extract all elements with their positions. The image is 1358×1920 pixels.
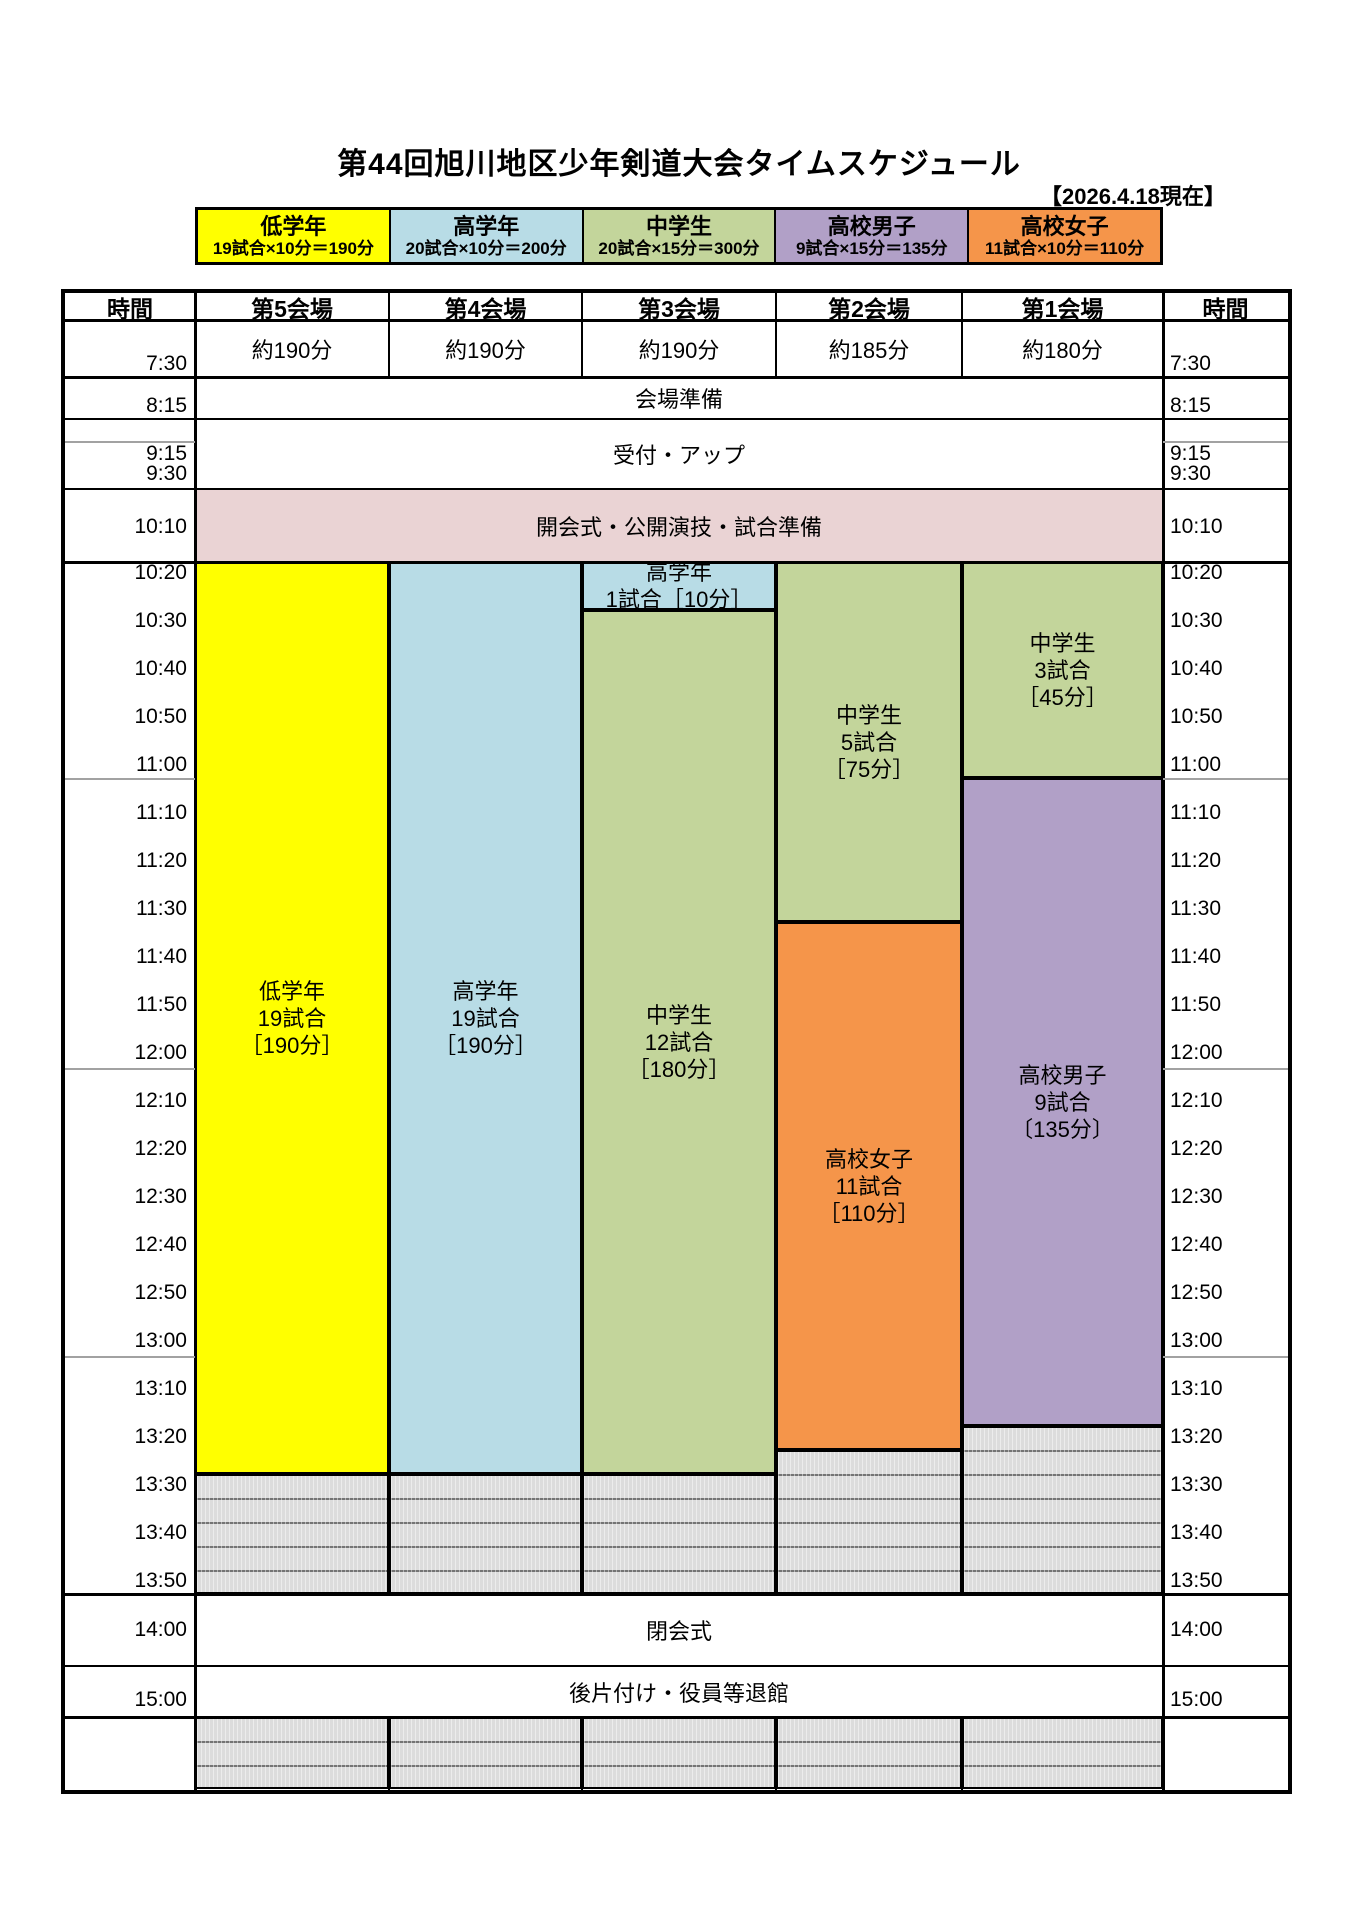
- legend-item: 高校女子11試合×10分＝110分: [967, 210, 1160, 262]
- time-column-divider: [1163, 778, 1288, 780]
- header-cell: 第1会場: [962, 293, 1163, 320]
- legend-item-formula: 11試合×10分＝110分: [985, 239, 1144, 258]
- legend-item: 高学年20試合×10分＝200分: [389, 210, 582, 262]
- schedule-block-v4: 高学年 19試合 ［190分］: [389, 562, 582, 1474]
- header-cell: 第3会場: [582, 293, 776, 320]
- row-line: [65, 488, 1288, 490]
- time-label-right: 10:40: [1170, 657, 1284, 681]
- time-label-left: 12:40: [65, 1233, 187, 1257]
- time-label-left: 11:50: [65, 993, 187, 1017]
- time-label-right: 10:30: [1170, 609, 1284, 633]
- time-label-right: 12:40: [1170, 1233, 1284, 1257]
- time-column-divider: [1163, 1068, 1288, 1070]
- column-line: [581, 1717, 583, 1790]
- header-cell: 時間: [65, 293, 195, 320]
- time-column-divider: [1163, 1356, 1288, 1358]
- time-label-left: 11:30: [65, 897, 187, 921]
- time-label-left: 12:10: [65, 1089, 187, 1113]
- time-label-right: 12:50: [1170, 1281, 1284, 1305]
- column-line: [194, 293, 197, 1790]
- gray-cell-v2: [776, 1450, 962, 1594]
- time-label-right: 13:50: [1170, 1569, 1284, 1593]
- time-label-right: 13:40: [1170, 1521, 1284, 1545]
- time-label-left: 11:40: [65, 945, 187, 969]
- time-label-left: 12:50: [65, 1281, 187, 1305]
- column-line: [775, 1717, 777, 1790]
- duration-cell: 約190分: [389, 320, 582, 377]
- time-label-right: 10:10: [1170, 515, 1284, 539]
- gray-cell-v2: [776, 1717, 962, 1789]
- schedule-block-v1: 中学生 3試合 ［45分］: [962, 562, 1163, 778]
- time-label-right: 12:00: [1170, 1041, 1284, 1065]
- time-label-left: 10:20: [65, 561, 187, 585]
- time-label-right: 10:50: [1170, 705, 1284, 729]
- legend-item: 低学年19試合×10分＝190分: [198, 210, 389, 262]
- merged-row: 会場準備: [195, 377, 1163, 419]
- time-label-left: 13:50: [65, 1569, 187, 1593]
- time-column-divider: [65, 441, 195, 443]
- schedule-block-v2: 高校女子 11試合 ［110分］: [776, 922, 962, 1450]
- time-label-left: 10:50: [65, 705, 187, 729]
- time-label-right: 12:20: [1170, 1137, 1284, 1161]
- legend-item-formula: 19試合×10分＝190分: [213, 239, 374, 258]
- time-label-right: 13:30: [1170, 1473, 1284, 1497]
- legend-item-formula: 20試合×15分＝300分: [598, 239, 759, 258]
- time-label-right: 11:40: [1170, 945, 1284, 969]
- time-label-right: 7:30: [1170, 352, 1284, 376]
- row-line: [65, 319, 1288, 322]
- time-label-right: 14:00: [1170, 1618, 1284, 1642]
- schedule-block-v5: 低学年 19試合 ［190分］: [195, 562, 389, 1474]
- column-line: [388, 1717, 390, 1790]
- duration-cell: 約185分: [776, 320, 962, 377]
- row-line: [65, 418, 1288, 420]
- time-label-left: 10:30: [65, 609, 187, 633]
- row-line: [65, 376, 1288, 379]
- column-line: [581, 562, 583, 1594]
- time-label-left: 13:30: [65, 1473, 187, 1497]
- gray-cell-v4: [389, 1474, 582, 1594]
- merged-row: 開会式・公開演技・試合準備: [195, 489, 1163, 562]
- column-line: [961, 1717, 963, 1790]
- legend-item-name: 低学年: [260, 215, 326, 239]
- time-label-left: 15:00: [65, 1688, 187, 1712]
- time-label-right: 11:50: [1170, 993, 1284, 1017]
- time-label-left: 11:20: [65, 849, 187, 873]
- time-column-divider: [65, 1356, 195, 1358]
- header-cell: 第4会場: [389, 293, 582, 320]
- header-cell: 第2会場: [776, 293, 962, 320]
- time-column-divider: [65, 1068, 195, 1070]
- page-title: 第44回旭川地区少年剣道大会タイムスケジュール: [0, 139, 1358, 183]
- time-label-right: 10:20: [1170, 561, 1284, 585]
- time-label-right: 13:00: [1170, 1329, 1284, 1353]
- time-label-right: 11:30: [1170, 897, 1284, 921]
- time-label-left: 13:10: [65, 1377, 187, 1401]
- time-label-right: 12:30: [1170, 1185, 1284, 1209]
- legend-item-name: 高校女子: [1021, 215, 1109, 239]
- column-line: [775, 562, 777, 1594]
- row-line: [65, 1716, 1288, 1719]
- column-line: [388, 562, 390, 1594]
- gray-cell-v5: [195, 1717, 389, 1789]
- time-label-left: 10:40: [65, 657, 187, 681]
- time-label-left: 7:30: [65, 352, 187, 376]
- time-label-right: 11:00: [1170, 753, 1284, 777]
- gray-cell-v1: [962, 1426, 1163, 1594]
- column-line: [961, 293, 963, 377]
- schedule-block-v1: 高校男子 9試合 〔135分〕: [962, 778, 1163, 1426]
- time-label-left: 11:00: [65, 753, 187, 777]
- gray-cell-v5: [195, 1474, 389, 1594]
- merged-row: 閉会式: [195, 1594, 1163, 1666]
- time-label-right: 13:10: [1170, 1377, 1284, 1401]
- schedule-page: 第44回旭川地区少年剣道大会タイムスケジュール 【2026.4.18現在】 低学…: [0, 0, 1358, 1920]
- header-cell: 時間: [1163, 293, 1288, 320]
- legend-item-name: 高校男子: [828, 215, 916, 239]
- legend-item-formula: 20試合×10分＝200分: [406, 239, 567, 258]
- schedule-block-v3: 中学生 12試合 ［180分］: [582, 610, 776, 1474]
- duration-cell: 約190分: [195, 320, 389, 377]
- legend: 低学年19試合×10分＝190分高学年20試合×10分＝200分中学生20試合×…: [195, 207, 1163, 265]
- time-label-right: 13:20: [1170, 1425, 1284, 1449]
- legend-item-name: 中学生: [646, 215, 712, 239]
- gray-cell-v4: [389, 1717, 582, 1789]
- legend-item: 中学生20試合×15分＝300分: [582, 210, 775, 262]
- header-cell: 第5会場: [195, 293, 389, 320]
- gray-cell-v3: [582, 1474, 776, 1594]
- time-label-left: 12:00: [65, 1041, 187, 1065]
- column-line: [775, 293, 777, 377]
- schedule-block-v3: 高学年 1試合［10分］: [582, 562, 776, 610]
- time-label-left: 13:40: [65, 1521, 187, 1545]
- column-line: [1162, 293, 1165, 1790]
- time-label-left: 9:30: [65, 462, 187, 486]
- column-line: [581, 293, 583, 377]
- merged-row: 後片付け・役員等退館: [195, 1666, 1163, 1717]
- time-label-left: 11:10: [65, 801, 187, 825]
- legend-item-name: 高学年: [453, 215, 519, 239]
- time-label-right: 11:20: [1170, 849, 1284, 873]
- time-label-left: 14:00: [65, 1618, 187, 1642]
- time-column-divider: [1163, 441, 1288, 443]
- column-line: [961, 562, 963, 1594]
- gray-cell-v1: [962, 1717, 1163, 1789]
- time-label-left: 12:30: [65, 1185, 187, 1209]
- time-label-right: 15:00: [1170, 1688, 1284, 1712]
- duration-cell: 約180分: [962, 320, 1163, 377]
- column-line: [388, 293, 390, 377]
- time-label-left: 8:15: [65, 394, 187, 418]
- time-label-right: 9:30: [1170, 462, 1284, 486]
- time-label-left: 12:20: [65, 1137, 187, 1161]
- time-column-divider: [65, 778, 195, 780]
- row-line: [65, 561, 1288, 564]
- gray-cell-v3: [582, 1717, 776, 1789]
- legend-item: 高校男子9試合×15分＝135分: [774, 210, 967, 262]
- time-label-right: 8:15: [1170, 394, 1284, 418]
- row-line: [65, 1593, 1288, 1596]
- row-line: [65, 1665, 1288, 1667]
- schedule-block-v2: 中学生 5試合 ［75分］: [776, 562, 962, 922]
- time-label-left: 13:20: [65, 1425, 187, 1449]
- time-label-left: 10:10: [65, 515, 187, 539]
- duration-cell: 約190分: [582, 320, 776, 377]
- time-label-right: 12:10: [1170, 1089, 1284, 1113]
- merged-row: 受付・アップ: [195, 419, 1163, 489]
- time-label-right: 11:10: [1170, 801, 1284, 825]
- time-label-left: 13:00: [65, 1329, 187, 1353]
- legend-item-formula: 9試合×15分＝135分: [796, 239, 948, 258]
